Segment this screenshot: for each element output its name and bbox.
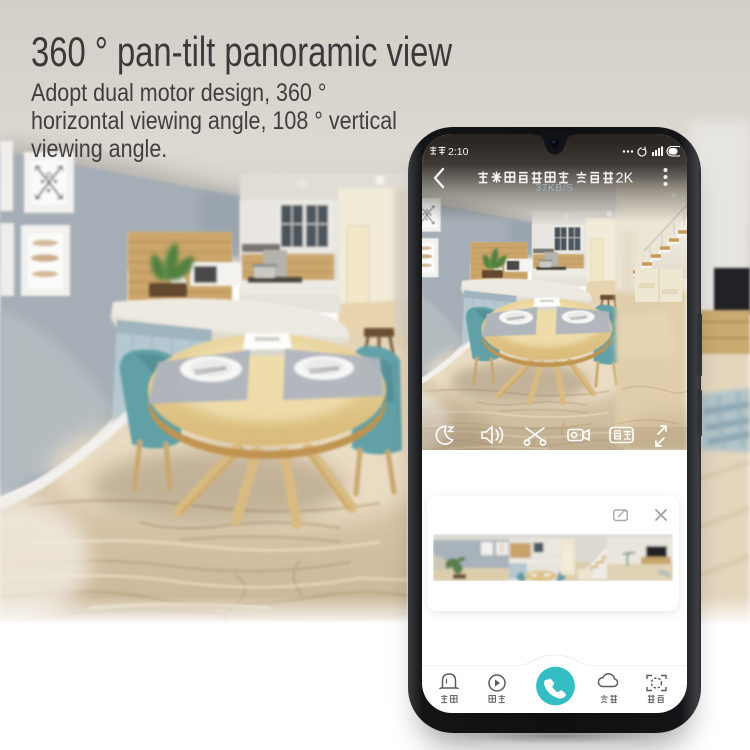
svg-text:2:10: 2:10 (448, 146, 469, 158)
